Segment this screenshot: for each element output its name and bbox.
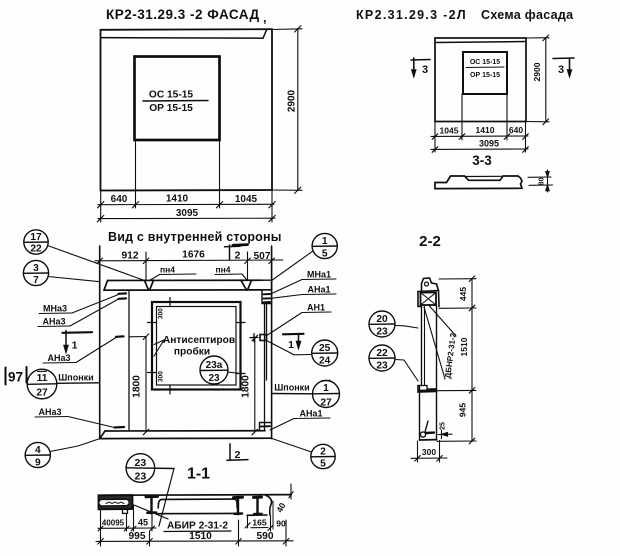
svg-text:640: 640 xyxy=(111,194,128,205)
svg-text:1-1: 1-1 xyxy=(187,466,210,483)
svg-text:25: 25 xyxy=(319,343,331,354)
svg-text:Антисептиров: Антисептиров xyxy=(163,335,235,346)
svg-text:Шпонки: Шпонки xyxy=(58,373,93,383)
svg-text:1: 1 xyxy=(322,236,328,247)
svg-text:165: 165 xyxy=(252,518,266,528)
svg-text:2: 2 xyxy=(235,250,241,262)
svg-text:11: 11 xyxy=(37,373,48,384)
svg-text:20: 20 xyxy=(376,314,388,325)
svg-text:945: 945 xyxy=(458,403,468,417)
svg-text:1800: 1800 xyxy=(132,375,143,398)
svg-text:27: 27 xyxy=(36,388,48,399)
svg-text:300: 300 xyxy=(158,371,165,382)
svg-text:23: 23 xyxy=(376,361,388,372)
svg-text:3-3: 3-3 xyxy=(472,153,492,168)
svg-text:Схема фасада: Схема фасада xyxy=(481,8,574,22)
svg-text:912: 912 xyxy=(122,251,139,262)
svg-text:1510: 1510 xyxy=(459,337,469,356)
svg-text:ОС 15-15: ОС 15-15 xyxy=(470,59,500,66)
svg-text:МНа3: МНа3 xyxy=(43,304,67,314)
svg-text:АН1: АН1 xyxy=(307,303,325,313)
svg-text:ОР 15-15: ОР 15-15 xyxy=(470,72,500,79)
svg-text:1410: 1410 xyxy=(476,125,495,135)
svg-text:АНа3: АНа3 xyxy=(42,317,65,327)
svg-text:9: 9 xyxy=(35,458,41,469)
svg-text:40095: 40095 xyxy=(102,519,125,528)
svg-text:80: 80 xyxy=(537,177,546,185)
svg-text:22: 22 xyxy=(30,244,42,255)
svg-text:995: 995 xyxy=(129,531,146,542)
svg-text:Шпонки: Шпонки xyxy=(274,383,309,393)
svg-text:2: 2 xyxy=(235,449,241,461)
svg-text:1800: 1800 xyxy=(240,375,251,398)
svg-text:АНа3: АНа3 xyxy=(47,353,70,363)
svg-text:2: 2 xyxy=(320,447,326,458)
svg-text:1045: 1045 xyxy=(440,126,459,136)
svg-text:22: 22 xyxy=(376,348,388,359)
svg-text:23: 23 xyxy=(135,471,147,483)
svg-text:24: 24 xyxy=(319,356,331,367)
svg-text:АБИР 2-31-2: АБИР 2-31-2 xyxy=(167,521,228,532)
svg-text:1410: 1410 xyxy=(166,194,189,205)
svg-text:3: 3 xyxy=(33,263,39,274)
svg-text:МНа1: МНа1 xyxy=(307,270,331,280)
svg-text:590: 590 xyxy=(257,531,274,542)
svg-text:445: 445 xyxy=(458,287,468,301)
svg-text:23: 23 xyxy=(135,457,147,469)
svg-text:5: 5 xyxy=(320,459,326,470)
svg-text:1510: 1510 xyxy=(189,531,212,542)
svg-text:1: 1 xyxy=(288,339,294,351)
svg-text:2900: 2900 xyxy=(287,89,298,112)
svg-text:1: 1 xyxy=(323,383,329,394)
svg-text:,: , xyxy=(263,10,267,25)
svg-text:3: 3 xyxy=(422,64,428,76)
svg-text:КР2-31.29.3 -2 ФАСАД: КР2-31.29.3 -2 ФАСАД xyxy=(106,7,260,22)
svg-text:пн4: пн4 xyxy=(160,265,175,275)
svg-text:640: 640 xyxy=(509,125,523,135)
svg-text:3: 3 xyxy=(558,64,564,76)
svg-text:пробки: пробки xyxy=(174,346,210,358)
svg-text:27: 27 xyxy=(320,398,332,409)
svg-text:17: 17 xyxy=(30,232,42,243)
svg-text:45: 45 xyxy=(138,518,148,528)
svg-text:97: 97 xyxy=(8,370,23,385)
svg-text:507: 507 xyxy=(254,251,271,262)
svg-text:ОР 15-15: ОР 15-15 xyxy=(149,103,193,114)
svg-text:ОС 15-15: ОС 15-15 xyxy=(149,90,194,101)
svg-text:1676: 1676 xyxy=(182,250,205,261)
svg-text:3095: 3095 xyxy=(176,208,199,219)
svg-text:Вид с внутренней стороны: Вид с внутренней стороны xyxy=(108,230,282,244)
svg-text:2-2: 2-2 xyxy=(419,233,441,250)
svg-text:1: 1 xyxy=(72,340,78,352)
svg-text:пн4: пн4 xyxy=(216,265,231,275)
svg-text:АНа1: АНа1 xyxy=(299,409,322,419)
svg-text:25: 25 xyxy=(440,422,447,430)
svg-text:300: 300 xyxy=(422,447,436,457)
svg-text:7: 7 xyxy=(33,275,39,286)
svg-text:5: 5 xyxy=(322,249,328,260)
svg-text:4: 4 xyxy=(35,445,41,456)
svg-text:АНа3: АНа3 xyxy=(38,407,61,417)
svg-text:300: 300 xyxy=(158,308,165,319)
svg-text:23: 23 xyxy=(376,327,388,338)
svg-text:23: 23 xyxy=(208,373,220,384)
svg-text:23а: 23а xyxy=(206,360,223,371)
svg-text:90: 90 xyxy=(276,519,286,529)
svg-text:2900: 2900 xyxy=(532,62,542,81)
svg-text:АНа1: АНа1 xyxy=(307,285,330,295)
svg-text:КР2.31.29.3 -2Л: КР2.31.29.3 -2Л xyxy=(356,8,467,22)
svg-text:1045: 1045 xyxy=(235,194,258,205)
svg-text:3095: 3095 xyxy=(479,139,499,149)
